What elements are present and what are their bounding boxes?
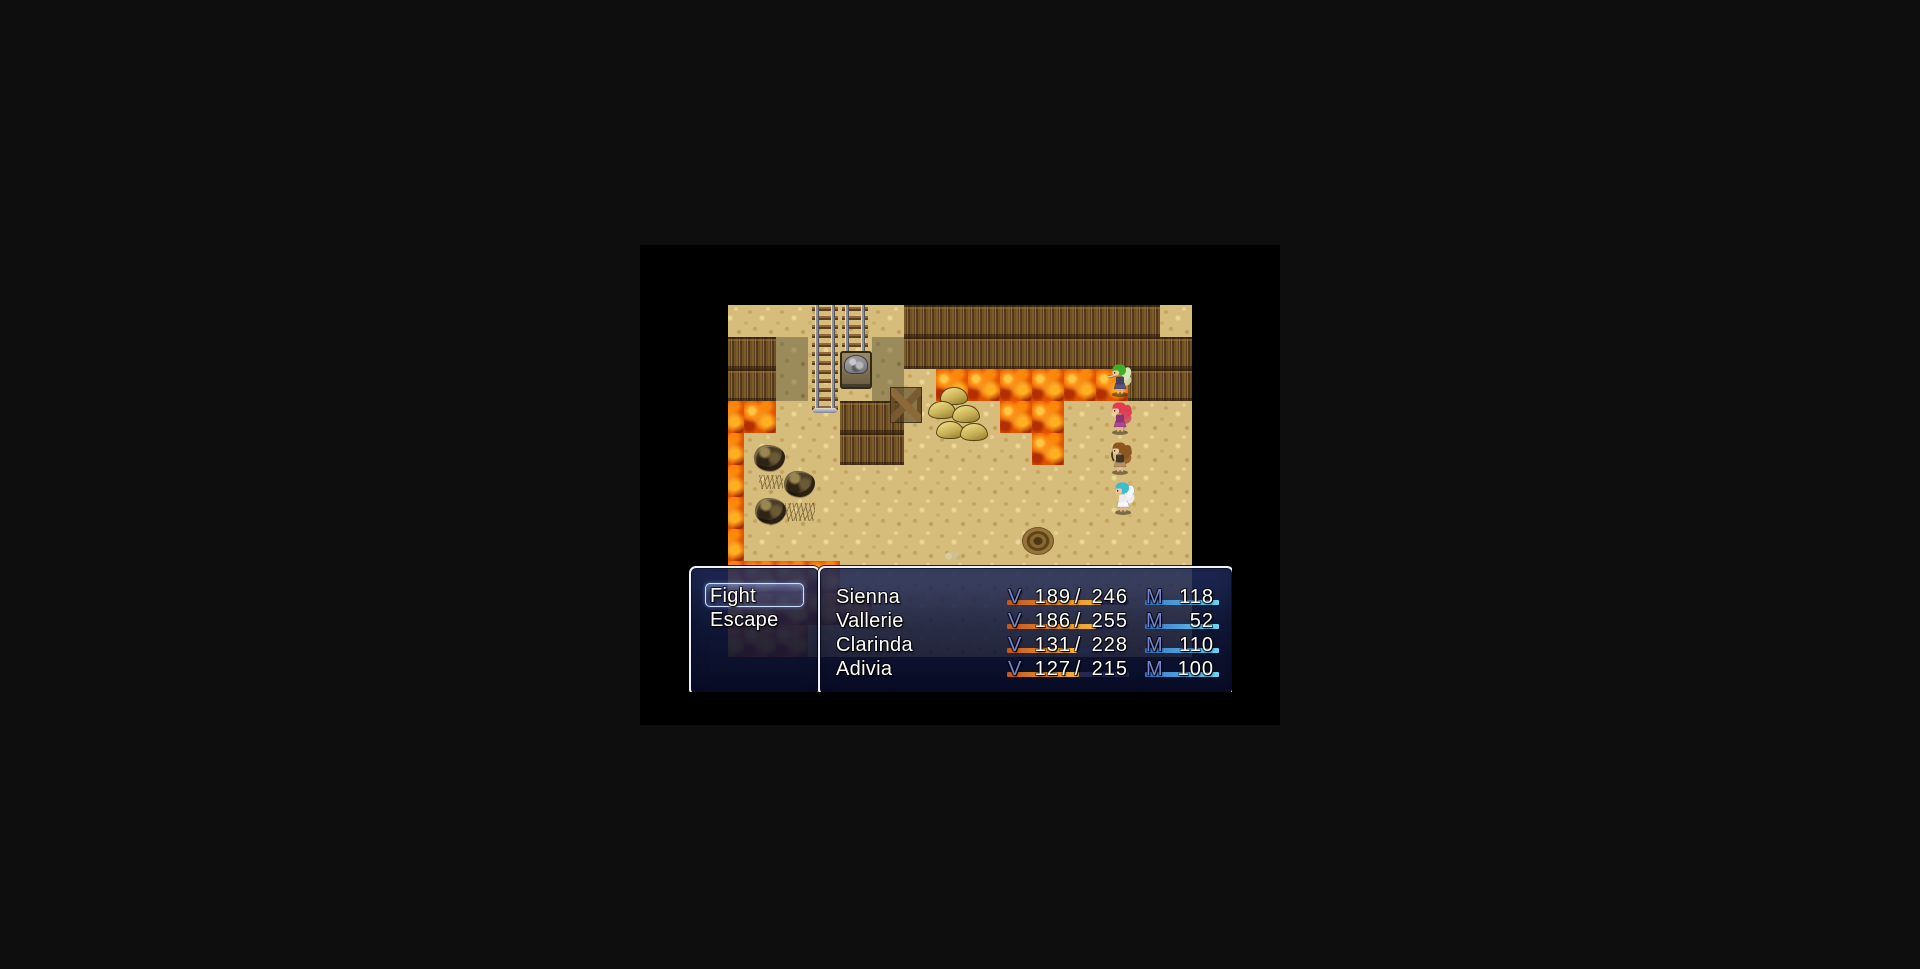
tile-cliff-wall (840, 401, 872, 433)
tile-sand (1160, 433, 1192, 465)
tile-sand (1160, 401, 1192, 433)
tile-lava (744, 401, 776, 433)
hp-max-value: 255 (1084, 609, 1128, 633)
tile-lava (728, 497, 744, 529)
command-item[interactable]: Escape (691, 608, 818, 632)
tile-sand (1000, 465, 1032, 497)
tile-sand (1032, 465, 1064, 497)
tile-sand (968, 465, 1000, 497)
tile-sand-shadow (776, 337, 808, 369)
tile-lava (1032, 369, 1064, 401)
tile-sand (872, 497, 904, 529)
command-list: Fight Escape (691, 584, 818, 632)
party-status-list: Sienna V 189 / 246 M 118 Vallerie V 186 … (820, 568, 1232, 692)
gold-ore-mound (960, 423, 988, 441)
tile-lava (728, 401, 744, 433)
tile-sand (1160, 529, 1192, 561)
hp-current-value: 186 (1007, 609, 1071, 633)
battle-command-window: Fight Escape (689, 566, 820, 692)
tile-sand (904, 497, 936, 529)
desktop-background: Fight Escape Sienna V 189 / 246 M 118 (0, 0, 1920, 969)
tile-sand (776, 529, 808, 561)
tile-cliff-wall (840, 433, 872, 465)
tile-lava (1000, 369, 1032, 401)
mp-value: 118 (1157, 585, 1214, 609)
actor-sprite-adivia (1111, 481, 1135, 515)
mp-value: 52 (1157, 609, 1214, 633)
tile-sand (744, 529, 776, 561)
minecart-ore (844, 355, 868, 374)
command-item[interactable]: Fight (691, 584, 818, 608)
tile-sand (1128, 433, 1160, 465)
tile-lava (1000, 401, 1032, 433)
hp-separator: / (1072, 609, 1084, 633)
tile-lava (1064, 369, 1096, 401)
tile-cliff-wall (1128, 369, 1160, 401)
hp-max-value: 228 (1084, 633, 1128, 657)
tile-cliff-wall (1128, 305, 1160, 337)
hp-current-value: 189 (1007, 585, 1071, 609)
tile-cliff-wall (728, 369, 744, 401)
actor-name: Sienna (836, 585, 900, 609)
tile-sand (1096, 529, 1128, 561)
tile-sand (728, 305, 744, 337)
tile-sand (1032, 497, 1064, 529)
tile-sand (776, 305, 808, 337)
tile-sand (1128, 401, 1160, 433)
actor-sprite-sienna (1108, 363, 1132, 397)
tile-sand (904, 529, 936, 561)
tile-sand (1160, 497, 1192, 529)
tile-cliff-wall (1032, 337, 1064, 369)
actor-sprite-clarinda (1108, 441, 1132, 475)
hp-separator: / (1072, 585, 1084, 609)
tile-cliff-wall (1000, 337, 1032, 369)
tile-sand (1160, 465, 1192, 497)
party-status-row: Sienna V 189 / 246 M 118 (820, 585, 1232, 609)
tile-sand (808, 433, 840, 465)
tile-sand (904, 465, 936, 497)
gold-ore-mound (952, 405, 980, 423)
tile-sand (1000, 497, 1032, 529)
tile-sand (968, 497, 1000, 529)
tile-sand (1064, 529, 1096, 561)
tile-lava (728, 529, 744, 561)
tile-cliff-wall (744, 369, 776, 401)
mp-gauge-group: M 110 (1143, 633, 1220, 657)
tile-sand-shadow (872, 337, 904, 369)
map-object-ore-cluster (928, 385, 990, 441)
mp-value: 110 (1157, 633, 1214, 657)
tile-sand (1064, 433, 1096, 465)
map-object-minecart (840, 351, 872, 389)
tile-cliff-wall (872, 433, 904, 465)
hp-max-value: 246 (1084, 585, 1128, 609)
actor-name: Clarinda (836, 633, 913, 657)
tile-sand (872, 529, 904, 561)
tile-sand (1064, 401, 1096, 433)
tile-cliff-wall (904, 305, 936, 337)
tile-cliff-wall (1064, 337, 1096, 369)
hp-separator: / (1072, 633, 1084, 657)
tile-cliff-wall (1160, 337, 1192, 369)
hp-gauge-group: V 131 / 228 (1005, 633, 1130, 657)
tile-cliff-wall (1000, 305, 1032, 337)
party-status-row: Clarinda V 131 / 228 M 110 (820, 633, 1232, 657)
tile-cliff-wall (744, 337, 776, 369)
tile-sand (968, 529, 1000, 561)
map-object-grass (759, 475, 783, 489)
hp-max-value: 215 (1084, 657, 1128, 681)
tile-sand (936, 465, 968, 497)
tile-cliff-wall (904, 337, 936, 369)
actor-name: Adivia (836, 657, 892, 681)
tile-sand (1064, 465, 1096, 497)
game-screen: Fight Escape Sienna V 189 / 246 M 118 (688, 276, 1232, 692)
tile-sand (936, 497, 968, 529)
hp-gauge-group: V 127 / 215 (1005, 657, 1130, 681)
tile-sand (1128, 529, 1160, 561)
map-object-support (890, 387, 922, 423)
tile-sand (744, 305, 776, 337)
command-label: Escape (710, 608, 779, 632)
party-status-row: Vallerie V 186 / 255 M 52 (820, 609, 1232, 633)
tile-sand (872, 305, 904, 337)
tile-sand (1160, 305, 1192, 337)
tile-cliff-wall (1160, 369, 1192, 401)
hp-current-value: 127 (1007, 657, 1071, 681)
tile-sand (840, 497, 872, 529)
map-object-bones (944, 551, 962, 561)
tile-cliff-wall (936, 337, 968, 369)
tile-cliff-wall (968, 337, 1000, 369)
tile-sand (840, 529, 872, 561)
hp-gauge-group: V 186 / 255 (1005, 609, 1130, 633)
tile-cliff-wall (1032, 305, 1064, 337)
tile-sand (1000, 433, 1032, 465)
party-status-window: Sienna V 189 / 246 M 118 Vallerie V 186 … (818, 566, 1232, 692)
tile-lava (728, 465, 744, 497)
tile-sand (776, 401, 808, 433)
tile-cliff-wall (1064, 305, 1096, 337)
tile-sand (840, 465, 872, 497)
tile-lava (1032, 433, 1064, 465)
mp-gauge-group: M 52 (1143, 609, 1220, 633)
map-object-track (812, 305, 838, 413)
map-object-grass (785, 503, 815, 521)
tile-sand-shadow (776, 369, 808, 401)
game-window: Fight Escape Sienna V 189 / 246 M 118 (640, 245, 1280, 725)
actor-sprite-vallerie (1108, 401, 1132, 435)
map-object-rope (1022, 527, 1054, 555)
tile-lava (1032, 401, 1064, 433)
tile-sand (808, 529, 840, 561)
tile-lava (728, 433, 744, 465)
tile-cliff-wall (1096, 305, 1128, 337)
mp-value: 100 (1157, 657, 1214, 681)
tile-cliff-wall (936, 305, 968, 337)
tile-cliff-wall (1128, 337, 1160, 369)
tile-sand (1064, 497, 1096, 529)
party-status-row: Adivia V 127 / 215 M 100 (820, 657, 1232, 681)
hp-gauge-group: V 189 / 246 (1005, 585, 1130, 609)
tile-cliff-wall (968, 305, 1000, 337)
tile-sand (872, 465, 904, 497)
actor-name: Vallerie (836, 609, 904, 633)
mp-gauge-group: M 118 (1143, 585, 1220, 609)
mp-gauge-group: M 100 (1143, 657, 1220, 681)
hp-current-value: 131 (1007, 633, 1071, 657)
hp-separator: / (1072, 657, 1084, 681)
command-label: Fight (710, 584, 756, 608)
track-end-cap (813, 408, 837, 413)
tile-cliff-wall (728, 337, 744, 369)
